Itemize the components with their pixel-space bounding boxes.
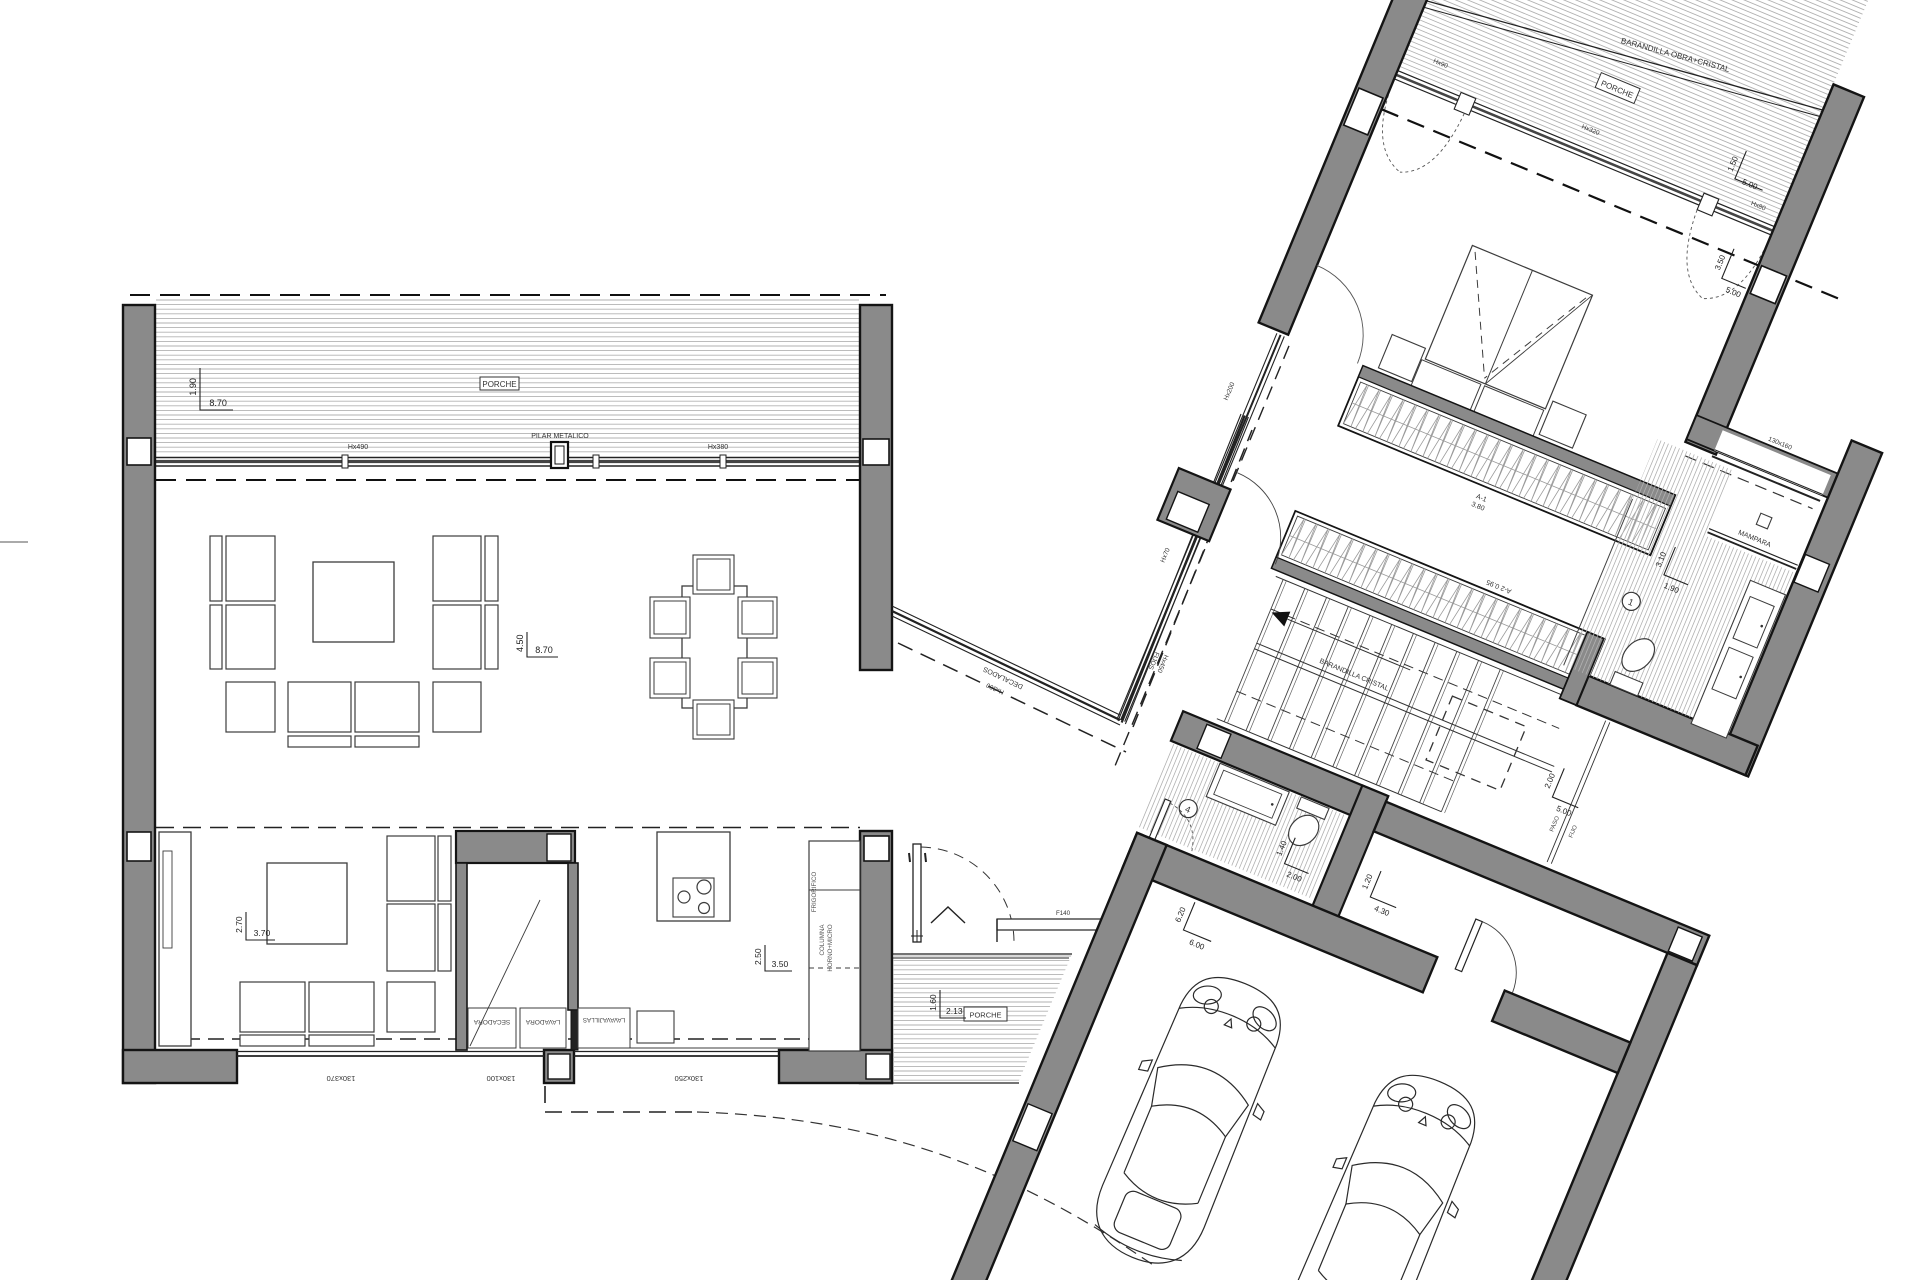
svg-text:130x100: 130x100: [487, 1074, 516, 1083]
svg-text:PILAR METALICO: PILAR METALICO: [531, 433, 589, 440]
svg-text:2.50: 2.50: [753, 948, 763, 965]
svg-text:HORNO+MICRO: HORNO+MICRO: [827, 924, 834, 971]
svg-text:FRIGORIFICO: FRIGORIFICO: [811, 872, 818, 913]
svg-text:130x370: 130x370: [327, 1074, 356, 1083]
svg-text:Hx380: Hx380: [708, 444, 728, 451]
svg-text:SECADORA: SECADORA: [473, 1018, 510, 1025]
svg-text:1.90: 1.90: [188, 378, 198, 396]
svg-text:PORCHE: PORCHE: [969, 1011, 1001, 1020]
svg-text:LAVAVAJILLAS: LAVAVAJILLAS: [583, 1016, 625, 1023]
svg-text:2.70: 2.70: [234, 916, 244, 933]
svg-text:2.13: 2.13: [946, 1006, 963, 1016]
svg-text:1.60: 1.60: [928, 994, 938, 1011]
svg-text:4.50: 4.50: [515, 634, 525, 652]
svg-text:8.70: 8.70: [209, 398, 227, 408]
svg-text:130x250: 130x250: [675, 1074, 704, 1083]
svg-text:3.70: 3.70: [254, 928, 271, 938]
svg-text:Hx490: Hx490: [348, 444, 368, 451]
svg-text:PORCHE: PORCHE: [482, 380, 516, 389]
svg-text:3.50: 3.50: [772, 959, 789, 969]
svg-text:COLUMNA: COLUMNA: [819, 924, 826, 956]
svg-text:8.70: 8.70: [535, 645, 553, 655]
svg-text:LAVADORA: LAVADORA: [525, 1018, 560, 1025]
svg-text:F140: F140: [1056, 910, 1071, 917]
